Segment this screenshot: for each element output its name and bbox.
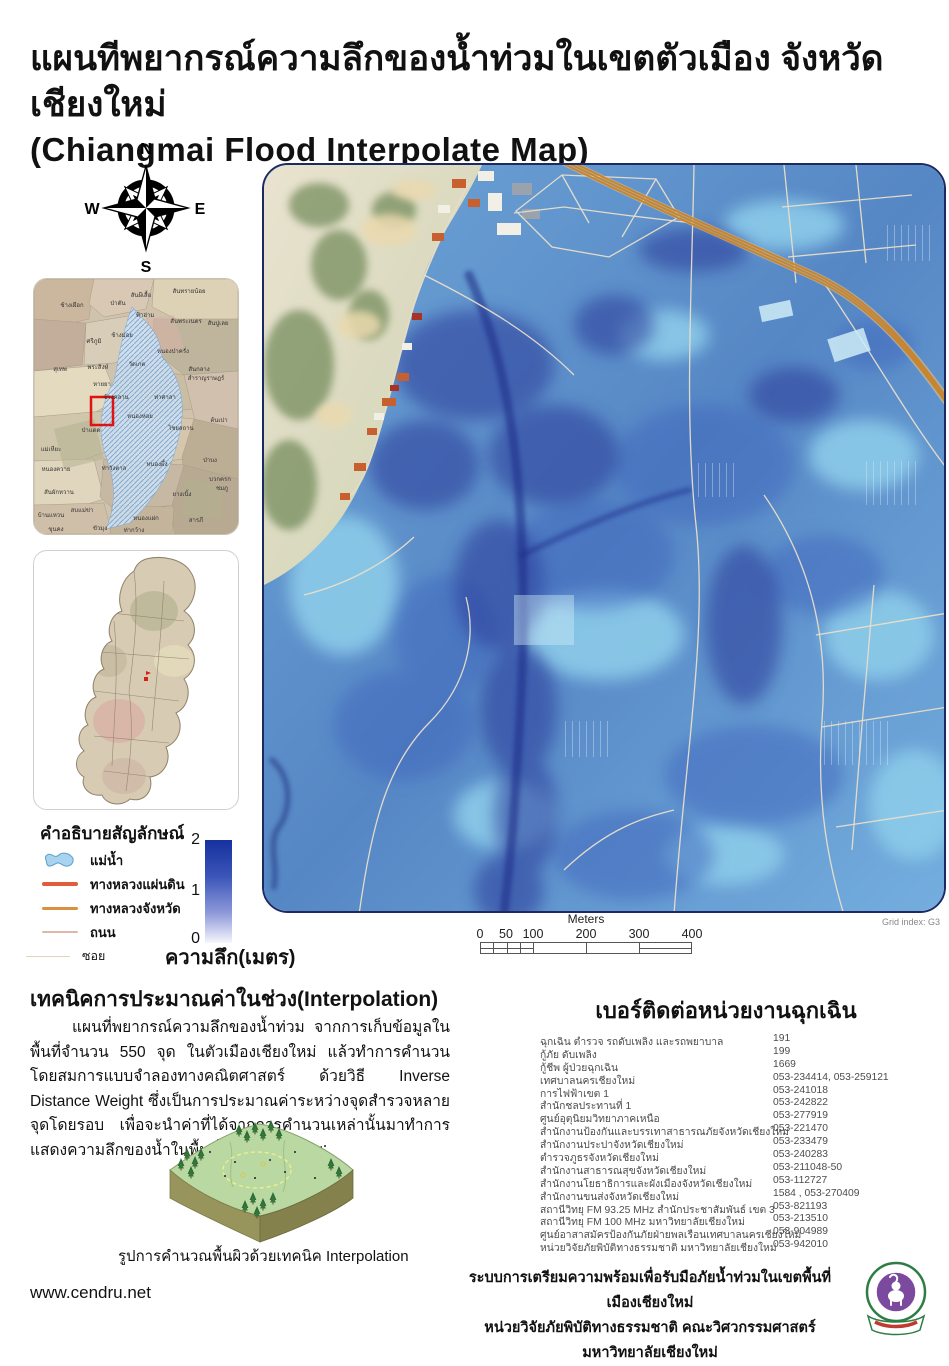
compass-rose: N S W E — [82, 138, 210, 281]
compass-icon: N S W E — [82, 138, 210, 276]
scalebar-title: Meters — [480, 912, 692, 926]
svg-text:หนองหอย: หนองหอย — [127, 414, 153, 420]
river-icon — [42, 851, 78, 869]
svg-text:ช้างม่อย: ช้างม่อย — [111, 332, 132, 339]
svg-text:ช้างคลาน: ช้างคลาน — [103, 394, 129, 401]
svg-text:หนองป่าครั่ง: หนองป่าครั่ง — [157, 347, 189, 355]
contact-row: ศูนย์อุตุนิยมวิทยาภาคเหนือ053-277919 — [540, 1110, 945, 1123]
svg-text:สันกลาง: สันกลาง — [188, 366, 209, 373]
footer-credits: ระบบการเตรียมความพร้อมเพื่อรับมือภัยน้ำท… — [455, 1266, 845, 1366]
svg-text:หนองควาย: หนองควาย — [42, 467, 71, 473]
contact-row: สำนักงานขนส่งจังหวัดเชียงใหม่1584 , 053-… — [540, 1188, 945, 1201]
compass-n: N — [140, 141, 152, 158]
national-highway-icon — [42, 882, 78, 886]
compass-s: S — [141, 259, 152, 276]
depth-tick-2: 2 — [180, 831, 200, 849]
grid-index-label: Grid index: G3 — [800, 917, 940, 927]
cendru-logo-icon — [860, 1260, 932, 1338]
svg-text:สันปูเลย: สันปูเลย — [208, 320, 229, 327]
website-link[interactable]: www.cendru.net — [30, 1283, 151, 1303]
contacts-heading: เบอร์ติดต่อหน่วยงานฉุกเฉิน — [540, 993, 912, 1028]
contact-row: การไฟฟ้าเขต 1053-241018 — [540, 1085, 945, 1098]
svg-text:ท่าวังตาล: ท่าวังตาล — [102, 465, 127, 472]
svg-text:ท่ากว้าง: ท่ากว้าง — [124, 527, 145, 534]
interpolation-terrain-figure — [135, 1112, 385, 1252]
svg-text:สันทรายน้อย: สันทรายน้อย — [172, 288, 205, 295]
legend-item-provincial-highway: ทางหลวงจังหวัด — [42, 896, 192, 920]
legend-item-national-highway: ทางหลวงแผ่นดิน — [42, 872, 192, 896]
road-icon — [42, 931, 78, 933]
legend-item-river: แม่น้ำ — [42, 848, 192, 872]
title-thai: แผนทีพยากรณ์ความลึกของน้ำท่วมในเขตตัวเมื… — [30, 36, 935, 128]
province-locator-map — [33, 550, 239, 810]
svg-text:ป่าบง: ป่าบง — [203, 457, 217, 464]
terrain-figure-caption: รูปการคำนวณพื้นผิวด้วยเทคนิค Interpolati… — [118, 1244, 409, 1268]
svg-text:ต้นเปา: ต้นเปา — [210, 417, 227, 424]
svg-text:สารภี: สารภี — [189, 516, 203, 524]
contact-row: ฉุกเฉิน ตำรวจ รถดับเพลิง และรถพยาบาล191 — [540, 1033, 945, 1046]
contact-row: กู้ชีพ ผู้ป่วยฉุกเฉิน1669 — [540, 1059, 945, 1072]
interpolation-heading: เทคนิคการประมาณค่าในช่วง(Interpolation) — [30, 983, 438, 1016]
svg-text:ช้างเผือก: ช้างเผือก — [60, 301, 84, 309]
contact-row: สถานีวิทยุ FM 93.25 MHz สำนักประชาสัมพัน… — [540, 1201, 945, 1214]
svg-text:แม่เหียะ: แม่เหียะ — [41, 445, 62, 453]
legend-title: คำอธิบายสัญลักษณ์ — [40, 820, 184, 847]
svg-text:พระสิงห์: พระสิงห์ — [88, 363, 109, 371]
depth-caption: ความลึก(เมตร) — [165, 941, 295, 973]
svg-text:สบแม่ข่า: สบแม่ข่า — [71, 507, 94, 514]
contact-row: สำนักชลประทานที่ 1053-242822 — [540, 1097, 945, 1110]
contact-row: สำนักงานโยธาธิการและผังเมืองจังหวัดเชียง… — [540, 1175, 945, 1188]
compass-e: E — [195, 201, 206, 218]
provincial-highway-icon — [42, 907, 78, 910]
terrain-3d-icon — [135, 1112, 385, 1247]
svg-text:ป่าตัน: ป่าตัน — [110, 300, 125, 307]
svg-text:บวกครก: บวกครก — [209, 476, 231, 483]
footer-line1: ระบบการเตรียมความพร้อมเพื่อรับมือภัยน้ำท… — [455, 1266, 845, 1316]
scalebar — [480, 942, 692, 954]
svg-text:ศรีภูมิ: ศรีภูมิ — [87, 337, 102, 345]
svg-text:ขัวมุง: ขัวมุง — [93, 525, 107, 532]
depth-tick-1: 1 — [180, 882, 200, 900]
svg-text:ไชยสถาน: ไชยสถาน — [167, 424, 193, 432]
cendru-logo — [860, 1260, 932, 1343]
contact-row: กู้ภัย ดับเพลิง199 — [540, 1046, 945, 1059]
svg-text:ขุนคง: ขุนคง — [48, 527, 63, 533]
district-locator-map: สันผีเสื้อ สันทรายน้อย ช้างเผือก ป่าตัน … — [33, 278, 239, 535]
contact-row: หน่วยวิจัยภัยพิบัติทางธรรมชาติ มหาวิทยาล… — [540, 1239, 945, 1252]
contact-row: ศูนย์อาสาสมัครป้องกันภัยฝ่ายพลเรือนเทศบา… — [540, 1226, 945, 1239]
svg-text:ท่าศาลา: ท่าศาลา — [154, 394, 176, 401]
soi-icon — [26, 956, 70, 957]
depth-colorbar — [205, 840, 232, 943]
svg-text:บ้านแหวน: บ้านแหวน — [38, 512, 65, 519]
district-map-image: สันผีเสื้อ สันทรายน้อย ช้างเผือก ป่าตัน … — [34, 279, 238, 534]
svg-text:หนองแฝก: หนองแฝก — [133, 515, 159, 522]
contact-row: สำนักงานประปาจังหวัดเชียงใหม่053-233479 — [540, 1136, 945, 1149]
svg-text:ชมภู: ชมภู — [216, 485, 228, 492]
svg-text:หายยา: หายยา — [93, 382, 111, 388]
province-map-image — [34, 551, 238, 809]
svg-text:สันพระเนตร: สันพระเนตร — [170, 318, 202, 325]
contact-row: ตำรวจภูธรจังหวัดเชียงใหม่053-240283 — [540, 1149, 945, 1162]
svg-text:สุเทพ: สุเทพ — [53, 366, 67, 373]
contact-row: เทศบาลนครเชียงใหม่053-234414, 053-259121 — [540, 1072, 945, 1085]
svg-text:สำราญราษฎร์: สำราญราษฎร์ — [188, 374, 225, 382]
svg-text:วัดเกต: วัดเกต — [129, 361, 146, 368]
contact-row: สถานีวิทยุ FM 100 MHz มหาวิทยาลัยเชียงให… — [540, 1213, 945, 1226]
scalebar-ticks: 0 50 100 200 300 400 — [470, 927, 710, 939]
svg-text:สันผักหวาน: สันผักหวาน — [44, 489, 74, 496]
flood-map-image — [264, 165, 946, 913]
contact-row: สำนักงานสาธารณสุขจังหวัดเชียงใหม่053-211… — [540, 1162, 945, 1175]
contact-row: สำนักงานป้องกันและบรรเทาสาธารณภัยจังหวัด… — [540, 1123, 945, 1136]
compass-w: W — [84, 201, 100, 218]
flood-map — [262, 163, 946, 913]
svg-text:ฟ้าฮ่าม: ฟ้าฮ่าม — [136, 312, 155, 319]
footer-line2: หน่วยวิจัยภัยพิบัติทางธรรมชาติ คณะวิศวกร… — [455, 1316, 845, 1366]
svg-text:ป่าแดด: ป่าแดด — [82, 427, 101, 434]
contacts-table: ฉุกเฉิน ตำรวจ รถดับเพลิง และรถพยาบาล191 … — [540, 1033, 945, 1252]
